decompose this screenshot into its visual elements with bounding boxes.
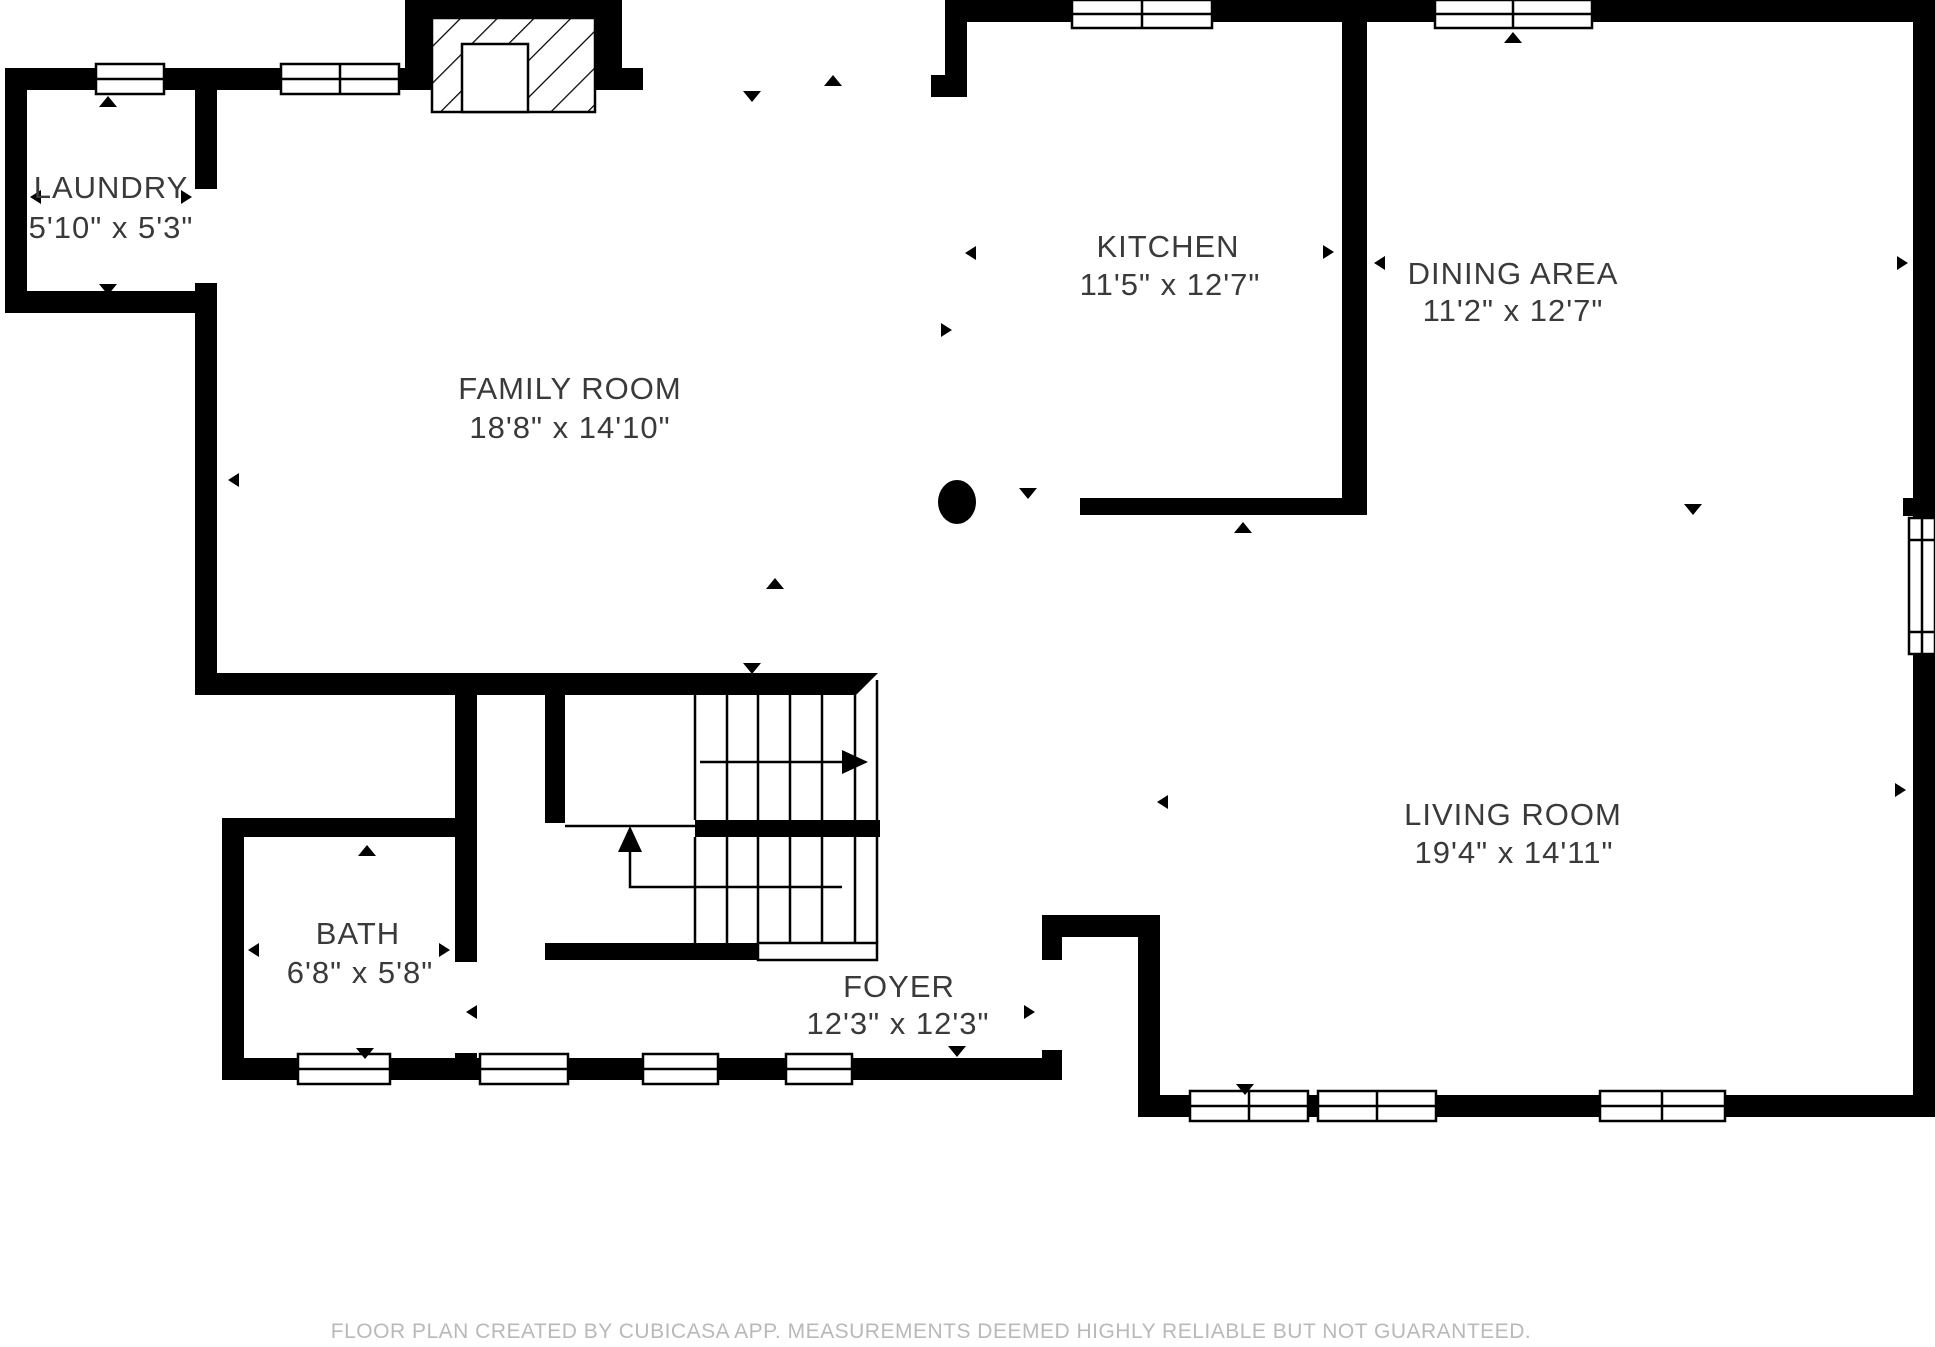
window-living-bottom-1 <box>1190 1091 1308 1121</box>
marker-down-dining <box>1684 504 1702 515</box>
window-right-wall <box>1909 518 1935 654</box>
room-dims-family-room: 18'8" x 14'10" <box>469 410 670 445</box>
marker-down-foyer <box>948 1046 966 1057</box>
room-label-laundry: LAUNDRY <box>34 170 189 205</box>
room-dims-living-room: 19'4" x 14'11" <box>1415 835 1614 870</box>
stair-opening-edge <box>758 943 877 960</box>
stair-direction-arrow-upper <box>700 750 868 774</box>
marker-down-kitchen <box>1019 488 1037 499</box>
window-living-bottom-3 <box>1600 1091 1725 1121</box>
room-label-bath: BATH <box>316 916 400 951</box>
marker-right-family <box>941 323 952 337</box>
windows <box>96 0 1935 1121</box>
marker-left-foyer <box>466 1005 477 1019</box>
window-dining-top <box>1435 0 1592 28</box>
room-label-living-room: LIVING ROOM <box>1404 797 1622 832</box>
marker-right-bath <box>439 943 450 957</box>
window-foyer-bottom-3 <box>786 1054 852 1084</box>
room-label-foyer: FOYER <box>843 969 955 1004</box>
room-label-kitchen: KITCHEN <box>1096 229 1239 264</box>
room-dims-kitchen: 11'5" x 12'7" <box>1080 267 1261 302</box>
footer-disclaimer: FLOOR PLAN CREATED BY CUBICASA APP. MEAS… <box>331 1320 1531 1343</box>
marker-left-dining <box>1374 256 1385 270</box>
marker-right-dining <box>1897 256 1908 270</box>
marker-down-family-top <box>743 91 761 102</box>
measurement-markers <box>30 32 1908 1095</box>
window-foyer-bottom-1 <box>480 1054 568 1084</box>
floor-plan-drawing: LAUNDRY 5'10" x 5'3" FAMILY ROOM 18'8" x… <box>0 0 1935 1347</box>
marker-right-kitchen <box>1323 245 1334 259</box>
room-dims-foyer: 12'3" x 12'3" <box>806 1006 989 1041</box>
window-kitchen-top <box>1072 0 1212 28</box>
marker-left-family <box>228 473 239 487</box>
marker-right-foyer <box>1024 1005 1035 1019</box>
window-laundry-top <box>96 64 164 94</box>
room-dims-bath: 6'8" x 5'8" <box>287 955 434 990</box>
marker-up-foyer <box>766 578 784 589</box>
window-living-bottom-2 <box>1318 1091 1436 1121</box>
marker-up-bath <box>358 845 376 856</box>
room-label-family-room: FAMILY ROOM <box>458 371 681 406</box>
fireplace-firebox <box>462 44 528 112</box>
room-dims-dining-area: 11'2" x 12'7" <box>1423 293 1604 328</box>
marker-right-living <box>1895 783 1906 797</box>
window-bath-bottom <box>298 1054 390 1084</box>
window-foyer-bottom-2 <box>643 1054 718 1084</box>
floor-plan-page: LAUNDRY 5'10" x 5'3" FAMILY ROOM 18'8" x… <box>0 0 1935 1347</box>
window-family-top <box>281 64 399 94</box>
column <box>938 480 976 524</box>
marker-up-living <box>1234 522 1252 533</box>
room-label-dining-area: DINING AREA <box>1408 256 1619 291</box>
marker-up-family <box>824 75 842 86</box>
marker-left-kitchen <box>965 246 976 260</box>
marker-left-living <box>1157 795 1168 809</box>
fireplace <box>432 18 595 112</box>
room-dims-laundry: 5'10" x 5'3" <box>29 210 194 245</box>
marker-down-family <box>743 663 761 674</box>
marker-up-dining <box>1504 32 1522 43</box>
room-labels: LAUNDRY 5'10" x 5'3" FAMILY ROOM 18'8" x… <box>29 170 1622 1041</box>
marker-left-bath <box>248 943 259 957</box>
walls <box>5 0 1935 1117</box>
marker-up-laundry <box>99 96 117 107</box>
